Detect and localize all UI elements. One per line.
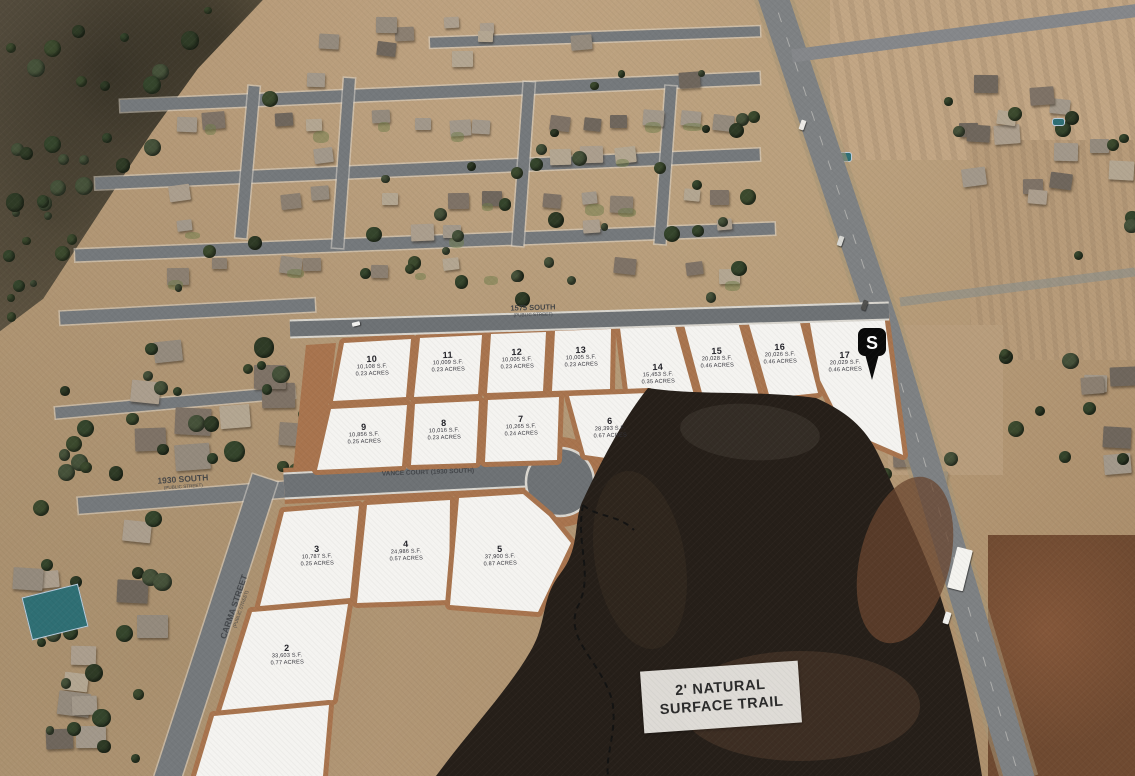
lot-parcel-11[interactable]: [414, 335, 482, 397]
plat-overlay: [0, 0, 1135, 776]
branch-road-top: [792, 10, 1135, 56]
aerial-map: 233,603 S.F.0.77 ACRES537,900 S.F.0.87 A…: [0, 0, 1135, 776]
trail-sign: 2' NATURAL SURFACE TRAIL: [640, 661, 802, 734]
lot-parcel-9[interactable]: [317, 405, 407, 470]
pin-tail: [865, 354, 879, 380]
lot-parcel-13[interactable]: [552, 329, 611, 391]
lot-parcel-12[interactable]: [487, 332, 546, 393]
lot-parcel-8[interactable]: [411, 401, 479, 465]
branch-road-right: [900, 272, 1135, 302]
lot-parcel-4[interactable]: [357, 500, 450, 603]
lot-parcel-7[interactable]: [485, 397, 559, 462]
lot-parcel-3[interactable]: [260, 506, 359, 606]
lot-parcel-10[interactable]: [333, 339, 411, 401]
location-pin[interactable]: S: [856, 326, 888, 382]
pin-logo-glyph: S: [866, 333, 878, 353]
lot-parcel-2[interactable]: [221, 604, 348, 711]
lot-parcel-partial[interactable]: [196, 705, 329, 776]
